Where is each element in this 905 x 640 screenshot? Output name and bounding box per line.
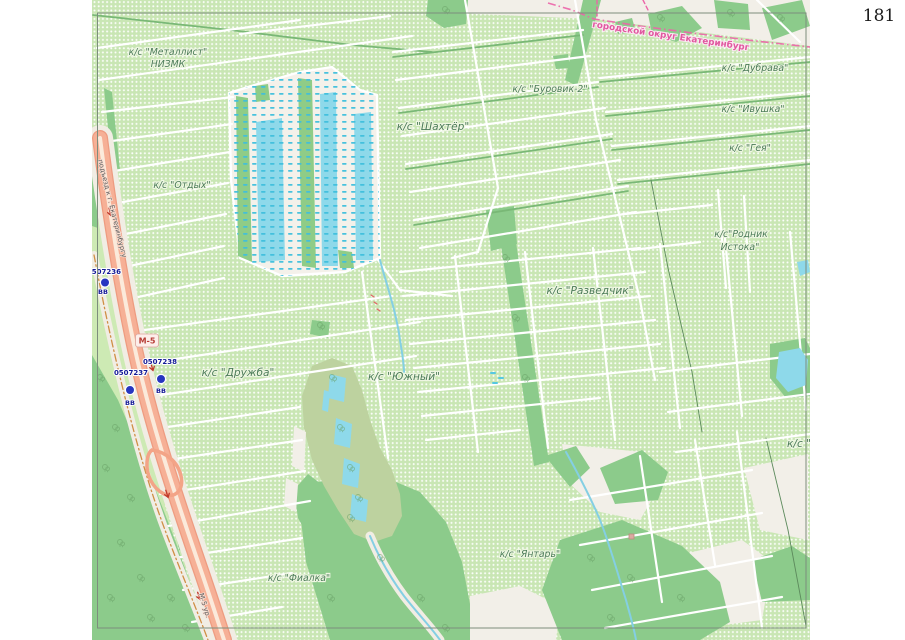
label-ks-dubrava: к/с "Дубрава": [722, 63, 789, 74]
poi-marker-dot[interactable]: [156, 374, 165, 383]
poi-marker-id: 0507238: [143, 358, 177, 366]
route-shield-m5: М-5: [136, 334, 159, 347]
page-number: 181: [863, 6, 895, 26]
route-shield-label: М-5: [139, 337, 156, 346]
label-ks-ivushka: к/с "Ивушка": [721, 104, 784, 115]
label-ks-fialka: к/с "Фиалка": [268, 573, 330, 584]
label-ks-rodnik-2: Истока": [721, 242, 760, 253]
label-ks-rodnik-1: к/с"Родник: [714, 229, 768, 240]
poi-marker-dot[interactable]: [100, 278, 109, 287]
label-ks-geya: к/с "Гея": [729, 143, 771, 154]
poi-marker-tag: ВВ: [125, 399, 135, 407]
poi-marker-tag: ВВ: [156, 387, 166, 395]
label-ks-metallist: к/с "Металлист": [129, 47, 208, 58]
atlas-page: М-5 подъезд к г. Екатеринбургу М-5 ур. г…: [0, 0, 905, 640]
label-ks-yantar: к/с "Янтарь": [500, 549, 560, 560]
poi-marker-id: 0507237: [114, 369, 148, 377]
label-ks-d-clipped: к/с "Д: [787, 438, 819, 450]
map-canvas[interactable]: М-5 подъезд к г. Екатеринбургу М-5 ур. г…: [0, 0, 905, 640]
label-ks-druzhba: к/с "Дружба": [202, 367, 275, 379]
map-marsh-block: [229, 67, 380, 276]
label-ks-yuzhny: к/с "Южный": [368, 371, 440, 383]
label-ks-razvedchik: к/с "Разведчик": [546, 285, 633, 297]
poi-marker-tag: ВВ: [98, 288, 108, 296]
poi-marker-id: 0507236: [87, 268, 121, 276]
label-ks-otdyh: к/с "Отдых": [153, 180, 210, 191]
label-nizmk: НИЗМК: [151, 59, 186, 70]
label-ks-shahter: к/с "Шахтёр": [397, 121, 469, 133]
label-ks-burovik2: к/с "Буровик-2": [512, 84, 587, 95]
poi-marker-dot[interactable]: [125, 385, 134, 394]
